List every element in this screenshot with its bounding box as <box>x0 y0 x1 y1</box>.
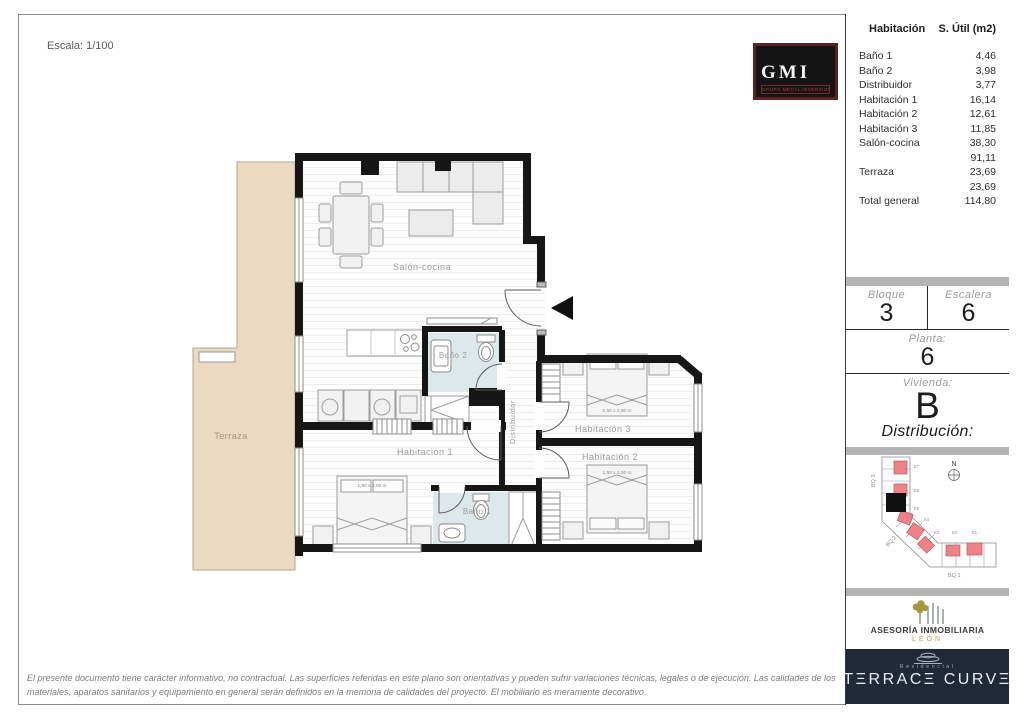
table-row: Habitación 1 16,14 <box>859 93 996 108</box>
escalera-cell: Escalera 6 <box>928 286 1009 329</box>
room-label-distribuidor: Distribuidor <box>508 400 517 444</box>
area-cell: 114,80 <box>965 194 996 209</box>
coffee-table <box>409 210 453 236</box>
brand-residencial: Residencial <box>900 664 956 670</box>
room-label-hab1: Habitación 1 <box>397 447 453 457</box>
col-area-header: S. Útil (m2) <box>939 23 996 35</box>
area-table: Habitación S. Útil (m2) Baño 1 4,46 Baño… <box>846 14 1009 277</box>
gmi-logo-name: GMI <box>761 63 830 83</box>
bq3-label: BQ 3 <box>871 474 877 487</box>
terraza-area: Terraza <box>193 162 295 570</box>
entrance-arrow-icon <box>551 296 573 320</box>
bq1-label: BQ 1 <box>948 573 961 579</box>
area-table-body: Baño 1 4,46 Baño 2 3,98 Distribuidor 3,7… <box>859 49 996 209</box>
stair-label: E7 <box>914 464 920 469</box>
table-row: Total general 114,80 <box>859 194 996 209</box>
disclaimer-line1: El presente documento tiene carácter inf… <box>27 672 839 686</box>
area-cell: 23,69 <box>970 165 996 180</box>
planta-value: 6 <box>846 345 1009 369</box>
room-cell: Distribuidor <box>859 78 912 93</box>
room-cell: Habitación 2 <box>859 107 917 122</box>
stair-label: E5 <box>914 506 920 511</box>
room-cell: Baño 2 <box>859 64 892 79</box>
sidebar: Habitación S. Útil (m2) Baño 1 4,46 Baño… <box>845 14 1009 705</box>
room-label-terraza: Terraza <box>214 431 248 441</box>
agency-tree-building-icon <box>906 598 950 624</box>
area-cell: 16,14 <box>970 93 996 108</box>
room-label-bano2: Baño 2 <box>439 351 467 360</box>
scale-label: Escala: 1/100 <box>47 40 114 52</box>
agency-name: ASESORÍA INMOBILIARIA <box>871 625 985 635</box>
agency-city: LEÓN <box>912 636 943 643</box>
room-label-salon: Salón-cocina <box>393 262 451 272</box>
room-label-hab2: Habitación 2 <box>582 452 638 462</box>
unit-info: Bloque 3 Escalera 6 Planta: 6 Vivienda: … <box>846 286 1009 447</box>
separator-bar <box>846 588 1009 596</box>
table-row: Baño 1 4,46 <box>859 49 996 64</box>
compass-icon: N <box>949 461 960 481</box>
disclaimer: El presente documento tiene carácter inf… <box>27 672 839 699</box>
bloque-value: 3 <box>846 301 927 325</box>
area-cell: 23,69 <box>970 180 996 195</box>
separator-bar <box>846 447 1009 455</box>
table-row: Habitación 3 11,85 <box>859 122 996 137</box>
kitchen-counter <box>347 330 423 356</box>
room-label-bano1: Baño 1 <box>463 507 491 516</box>
bed-dim-hab1: 1,50 x 2,00 m <box>357 483 386 489</box>
room-cell: Terraza <box>859 165 894 180</box>
bano1-shower <box>509 492 537 548</box>
agency-logo: ASESORÍA INMOBILIARIA LEÓN <box>846 596 1009 649</box>
selected-unit <box>886 493 906 512</box>
escalera-value: 6 <box>928 301 1009 325</box>
stair-label: E3 <box>934 530 940 535</box>
area-table-header: Habitación S. Útil (m2) <box>859 23 996 35</box>
table-row: Terraza 23,69 <box>859 165 996 180</box>
room-label-hab3: Habitación 3 <box>575 424 631 434</box>
bed-dim-hab3: 1,50 x 2,00 m <box>602 408 631 414</box>
terrace-railing <box>199 352 235 362</box>
bed-dim-hab2: 1,50 x 2,00 m <box>602 470 631 476</box>
room-cell: Habitación 1 <box>859 93 917 108</box>
area-cell: 38,30 <box>970 136 996 151</box>
bloque-cell: Bloque 3 <box>846 286 928 329</box>
bq2-label: BQ 2 <box>885 535 898 548</box>
table-row: 23,69 <box>859 180 996 195</box>
stair-label: E2 <box>952 530 958 535</box>
area-cell: 12,61 <box>970 107 996 122</box>
vivienda-cell: Vivienda: B Distribución: <box>846 374 1009 447</box>
room-cell: Salón-cocina <box>859 136 920 151</box>
gmi-logo: GMI GRUPO MECAL INVERSIONES <box>753 43 838 100</box>
vivienda-value: B <box>846 389 1009 422</box>
table-row: 91,11 <box>859 151 996 166</box>
table-row: Salón-cocina 38,30 <box>859 136 996 151</box>
area-cell: 4,46 <box>976 49 996 64</box>
stair-labels: E7 E6 E5 E4 E3 E2 E1 <box>914 464 978 535</box>
table-row: Baño 2 3,98 <box>859 64 996 79</box>
brand-name: TΞRRACΞ CURVΞ <box>843 671 1011 689</box>
distribucion-label: Distribución: <box>846 423 1009 441</box>
stair-label: E1 <box>972 530 978 535</box>
plan-sheet: Escala: 1/100 GMI GRUPO MECAL INVERSIONE… <box>0 0 1024 723</box>
room-cell: Total general <box>859 194 919 209</box>
brand-logo: Residencial TΞRRACΞ CURVΞ <box>846 649 1009 704</box>
table-row: Distribuidor 3,77 <box>859 78 996 93</box>
stair-label: E6 <box>914 488 920 493</box>
table-row: Habitación 2 12,61 <box>859 107 996 122</box>
area-cell: 3,77 <box>976 78 996 93</box>
room-cell: Baño 1 <box>859 49 892 64</box>
area-cell: 3,98 <box>976 64 996 79</box>
planta-cell: Planta: 6 <box>846 330 1009 373</box>
col-room-header: Habitación <box>859 23 925 35</box>
gmi-logo-subtitle: GRUPO MECAL INVERSIONES <box>761 85 830 94</box>
area-cell: 11,85 <box>971 122 997 137</box>
separator-bar <box>846 277 1009 286</box>
kitchen-appliances <box>318 390 421 421</box>
site-map: E7 E6 E5 E4 E3 E2 E1 BQ 3 BQ 2 BQ 1 N <box>846 455 1009 588</box>
area-cell: 91,11 <box>971 151 997 166</box>
disclaimer-line2: materiales, aparatos sanitarios y equipa… <box>27 686 839 700</box>
room-cell: Habitación 3 <box>859 122 917 137</box>
svg-text:N: N <box>951 461 956 468</box>
stair-label: E4 <box>924 517 930 522</box>
floor-plan: Terraza <box>185 140 770 580</box>
